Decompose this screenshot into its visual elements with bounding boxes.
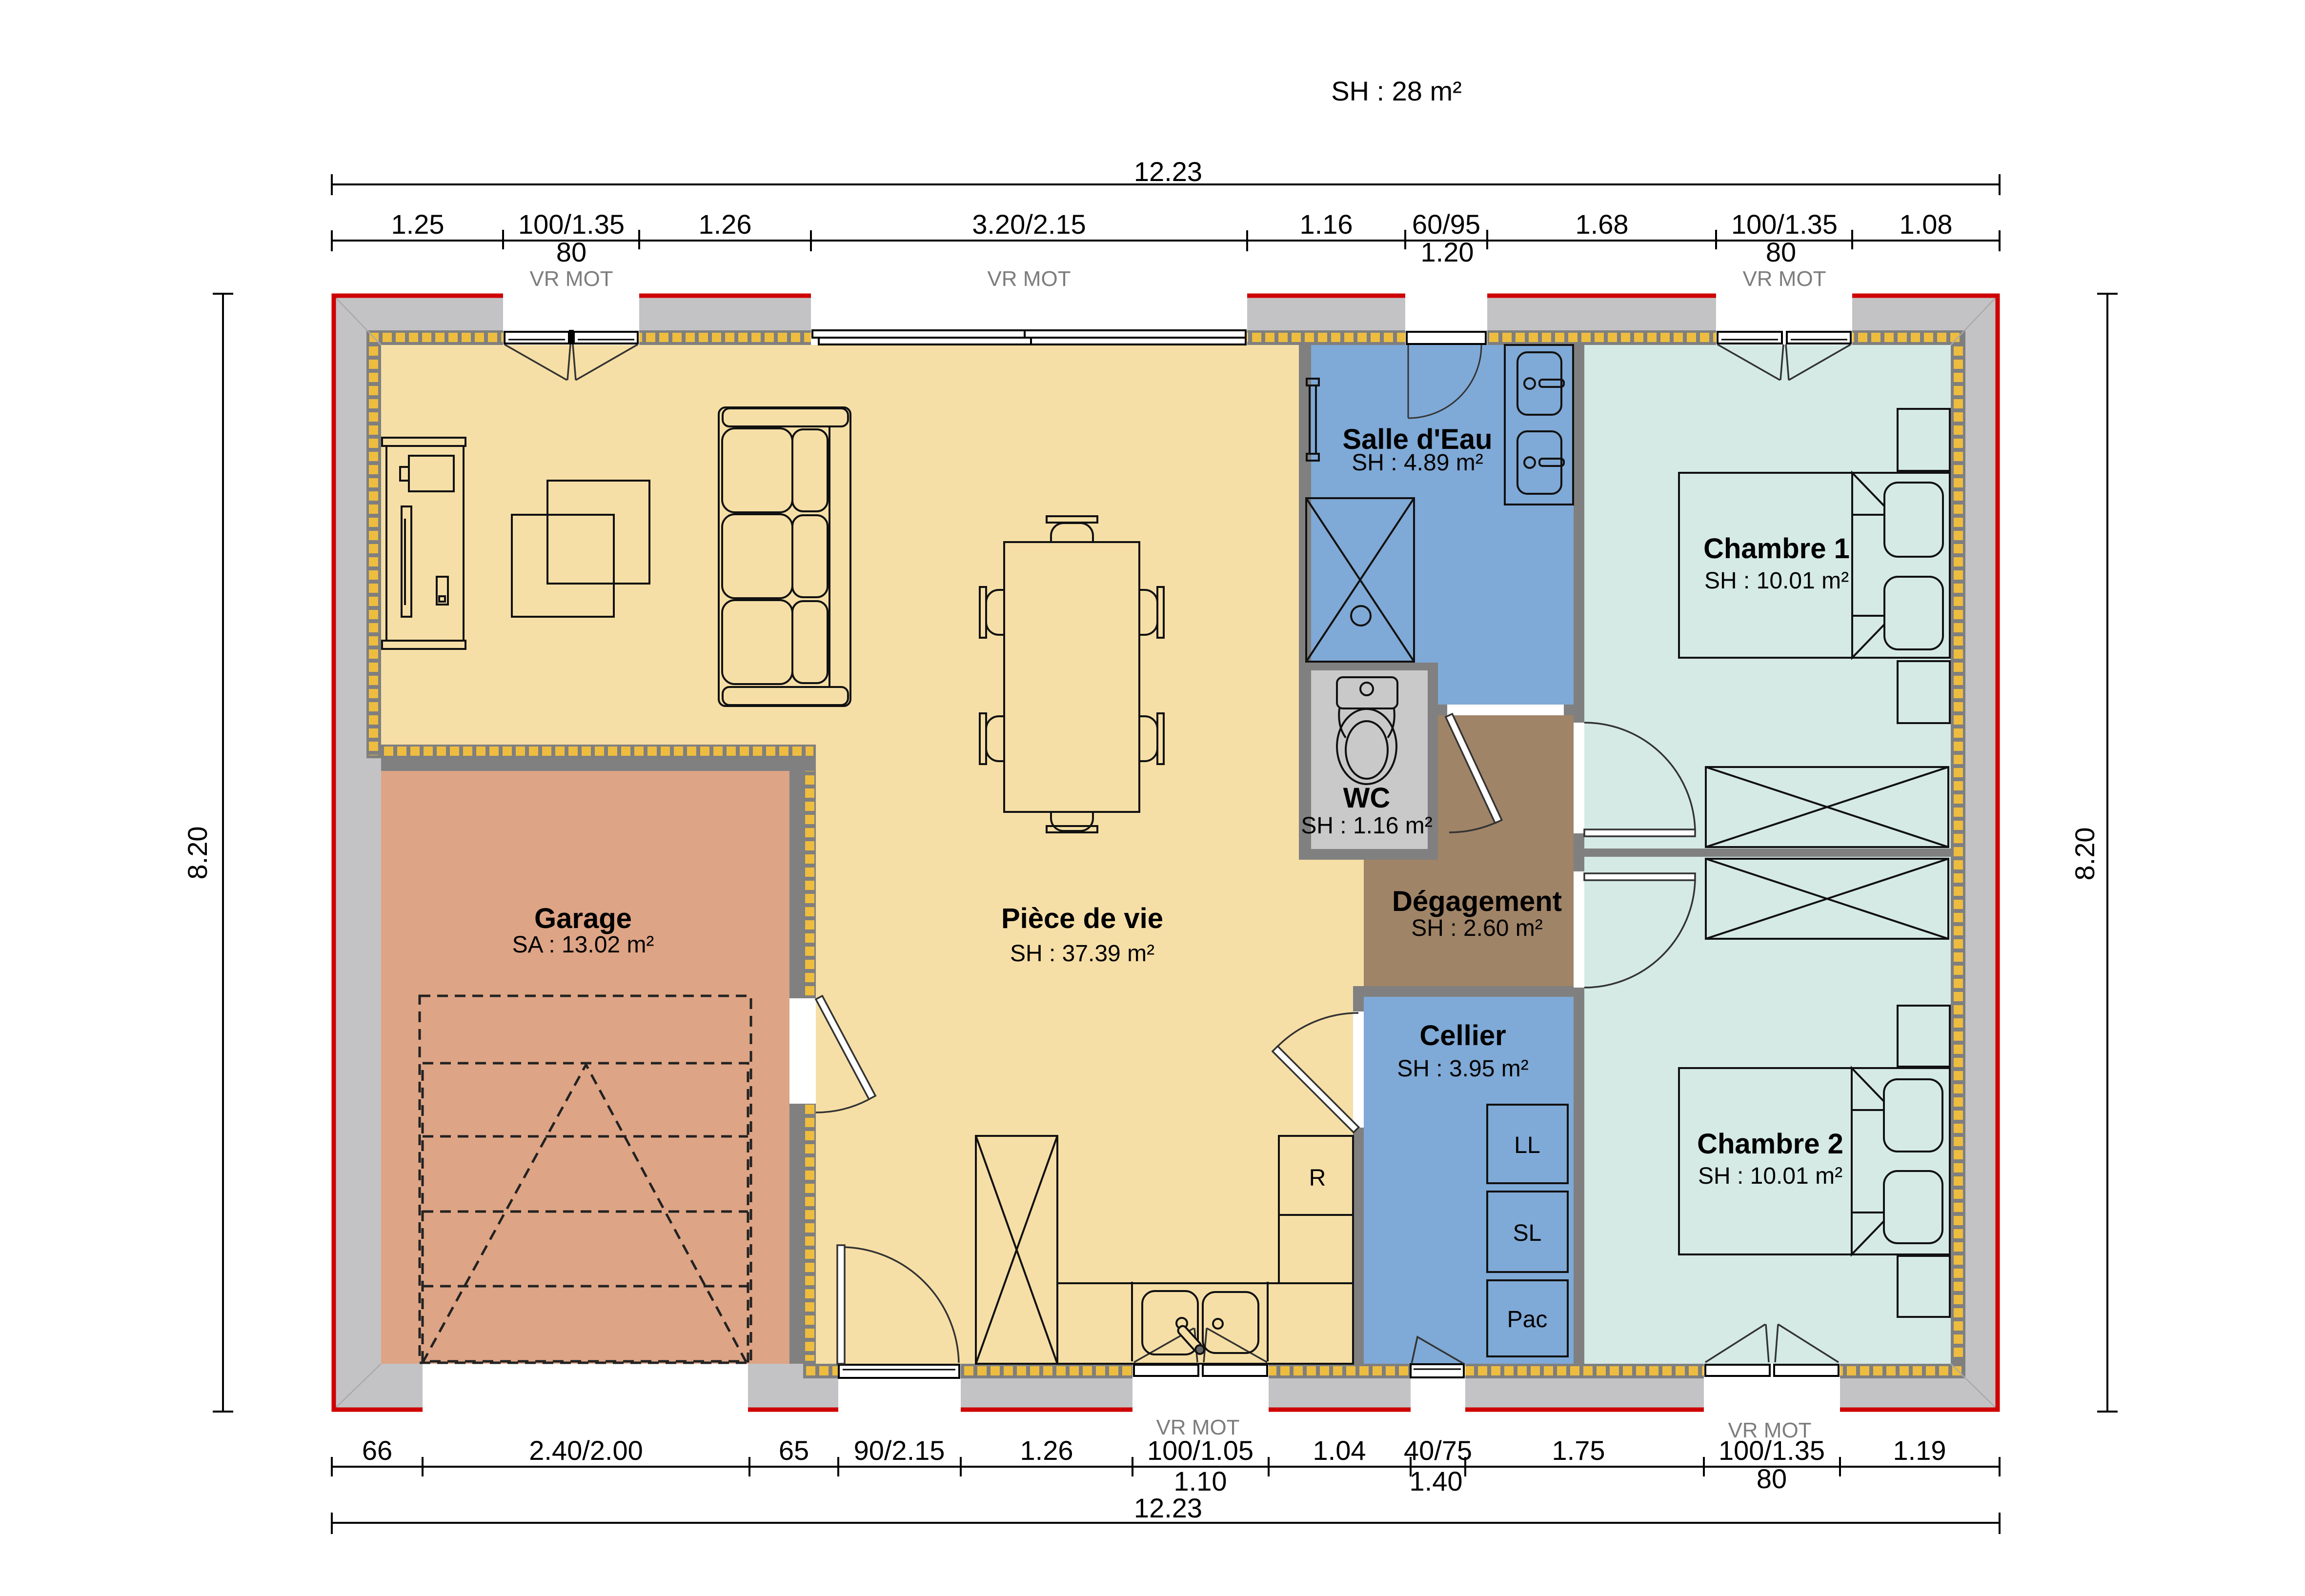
svg-text:1.40: 1.40: [1410, 1466, 1463, 1496]
svg-text:Cellier: Cellier: [1419, 1020, 1506, 1051]
svg-text:VR MOT: VR MOT: [987, 267, 1071, 291]
svg-text:12.23: 12.23: [1134, 1493, 1202, 1523]
svg-text:100/1.35: 100/1.35: [1731, 209, 1838, 240]
svg-text:Chambre 1: Chambre 1: [1703, 533, 1850, 565]
svg-text:Pièce de vie: Pièce de vie: [1001, 903, 1163, 934]
svg-text:SH : 4.89 m²: SH : 4.89 m²: [1352, 450, 1483, 476]
svg-text:SH : 3.95 m²: SH : 3.95 m²: [1397, 1056, 1528, 1082]
svg-text:Pac: Pac: [1507, 1307, 1548, 1333]
svg-text:SH : 10.01 m²: SH : 10.01 m²: [1704, 568, 1849, 594]
svg-text:100/1.35: 100/1.35: [1719, 1435, 1825, 1466]
svg-text:WC: WC: [1343, 782, 1391, 814]
svg-text:1.25: 1.25: [391, 209, 445, 240]
svg-text:65: 65: [779, 1435, 809, 1466]
svg-text:60/95: 60/95: [1412, 209, 1480, 240]
svg-text:SH : 1.16 m²: SH : 1.16 m²: [1301, 813, 1432, 839]
svg-text:100/1.35: 100/1.35: [518, 209, 625, 240]
svg-text:1.04: 1.04: [1313, 1435, 1366, 1466]
svg-text:SH : 37.39 m²: SH : 37.39 m²: [1010, 941, 1154, 967]
svg-text:VR MOT: VR MOT: [1742, 267, 1826, 291]
svg-text:1.19: 1.19: [1893, 1435, 1946, 1466]
svg-text:1.16: 1.16: [1300, 209, 1353, 240]
svg-text:8.20: 8.20: [2069, 828, 2100, 881]
svg-text:SA : 13.02 m²: SA : 13.02 m²: [512, 932, 654, 958]
svg-text:1.68: 1.68: [1576, 209, 1629, 240]
svg-text:66: 66: [362, 1435, 392, 1466]
svg-text:Dégagement: Dégagement: [1392, 886, 1562, 917]
svg-text:LL: LL: [1514, 1132, 1540, 1158]
svg-text:2.40/2.00: 2.40/2.00: [529, 1435, 643, 1466]
svg-text:R: R: [1309, 1165, 1326, 1191]
svg-text:100/1.05: 100/1.05: [1147, 1435, 1254, 1466]
svg-text:12.23: 12.23: [1134, 156, 1202, 187]
svg-text:1.10: 1.10: [1174, 1466, 1227, 1496]
svg-text:80: 80: [556, 237, 586, 267]
svg-text:SH : 10.01 m²: SH : 10.01 m²: [1698, 1163, 1842, 1189]
svg-text:3.20/2.15: 3.20/2.15: [972, 209, 1086, 240]
svg-text:80: 80: [1766, 237, 1796, 267]
svg-text:Garage: Garage: [534, 903, 632, 934]
svg-text:SH : 28 m²: SH : 28 m²: [1331, 76, 1462, 106]
svg-text:90/2.15: 90/2.15: [854, 1435, 945, 1466]
svg-text:1.26: 1.26: [1020, 1435, 1073, 1466]
svg-text:1.20: 1.20: [1421, 237, 1474, 267]
svg-text:SH : 2.60 m²: SH : 2.60 m²: [1411, 915, 1542, 941]
svg-text:1.26: 1.26: [699, 209, 752, 240]
svg-text:Chambre 2: Chambre 2: [1697, 1128, 1843, 1160]
svg-text:VR MOT: VR MOT: [529, 267, 613, 291]
svg-text:1.08: 1.08: [1900, 209, 1953, 240]
svg-text:80: 80: [1757, 1463, 1787, 1494]
svg-text:SL: SL: [1513, 1220, 1542, 1246]
svg-text:8.20: 8.20: [182, 827, 213, 880]
svg-text:40/75: 40/75: [1404, 1435, 1472, 1466]
svg-text:1.75: 1.75: [1552, 1435, 1605, 1466]
